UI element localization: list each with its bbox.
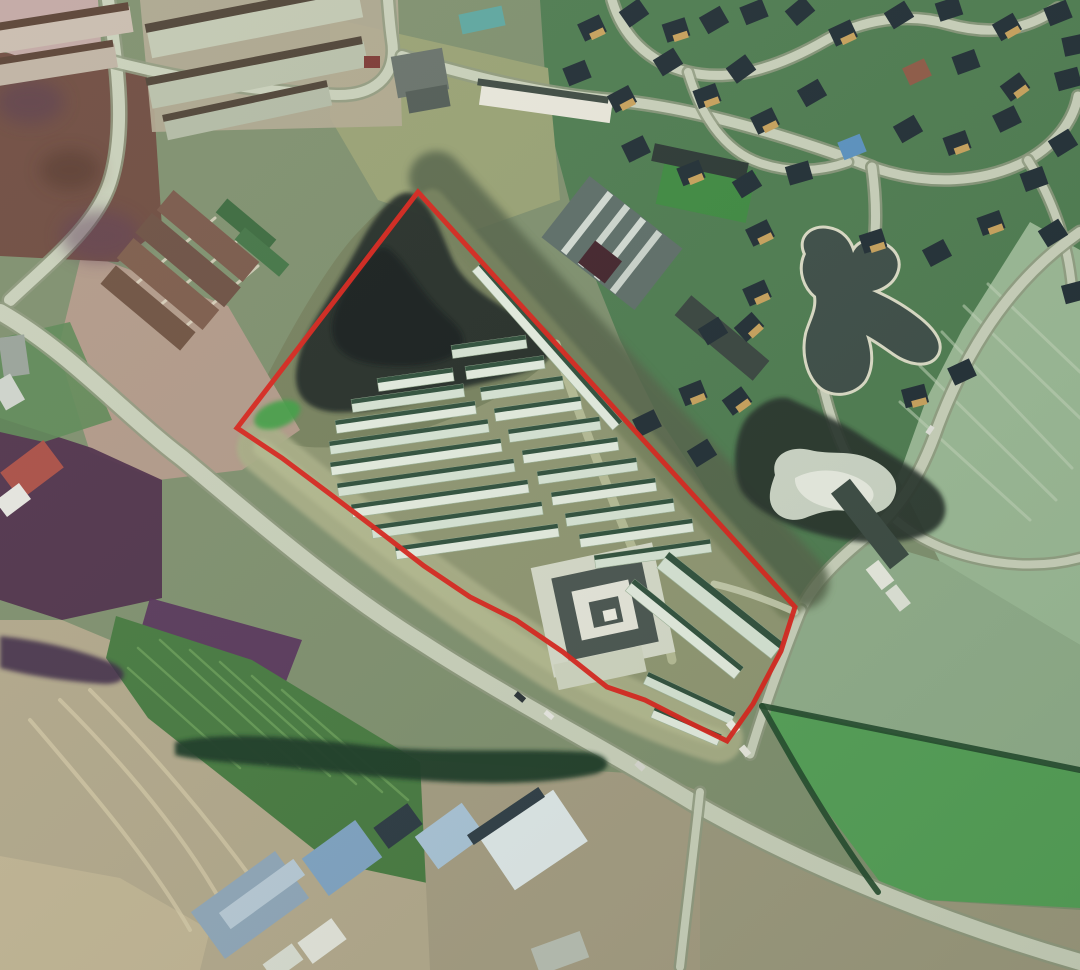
map-viewport: [0, 0, 1080, 970]
aerial-imagery: [0, 0, 1080, 970]
atmosphere-haze: [0, 0, 1080, 970]
